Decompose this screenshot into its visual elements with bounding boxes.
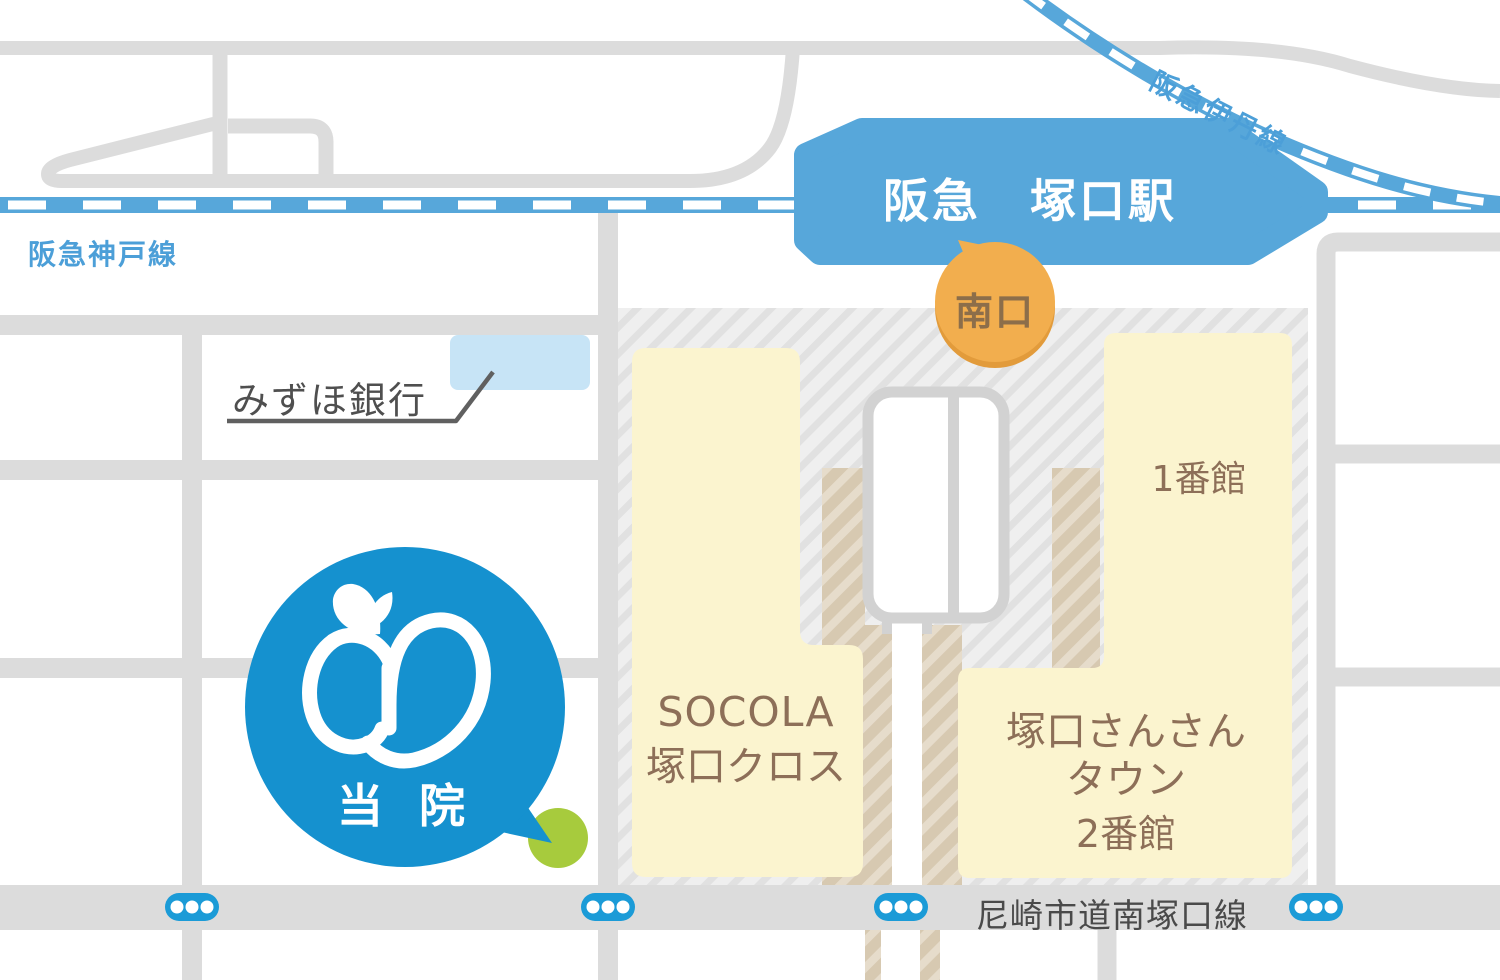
road-name-label: 尼崎市道南塚口線 xyxy=(976,889,1248,937)
traffic-signal-icon xyxy=(1289,893,1343,921)
access-map: 阪急神戸線 阪急伊丹線 阪急 塚口駅 南口 みずほ銀行 SOCOLA 塚口クロス… xyxy=(0,0,1500,980)
ramp-road xyxy=(48,48,793,181)
east-roads xyxy=(1318,242,1500,888)
traffic-signal-icon xyxy=(581,893,635,921)
ramp-elbow-road xyxy=(228,126,326,181)
terminal-access-road xyxy=(892,616,922,885)
socola-name-line2: 塚口クロス xyxy=(627,734,865,792)
station-name-label: 阪急 塚口駅 xyxy=(840,165,1220,231)
kobe-line-label: 阪急神戸線 xyxy=(28,233,178,273)
station-building xyxy=(868,392,1004,618)
sansan-town-label-line2: タウン xyxy=(960,747,1292,805)
main-road-south xyxy=(0,885,1500,930)
south-exit-label: 南口 xyxy=(933,281,1057,336)
bank-label: みずほ銀行 xyxy=(232,370,427,424)
traffic-signal-icon xyxy=(165,893,219,921)
traffic-signal-icon xyxy=(874,893,928,921)
clinic-label: 当 院 xyxy=(300,770,512,836)
sansan-town-label-line3: 2番館 xyxy=(960,803,1292,858)
building1-label: 1番館 xyxy=(1104,450,1294,502)
socola-name-line1: SOCOLA xyxy=(627,688,865,736)
